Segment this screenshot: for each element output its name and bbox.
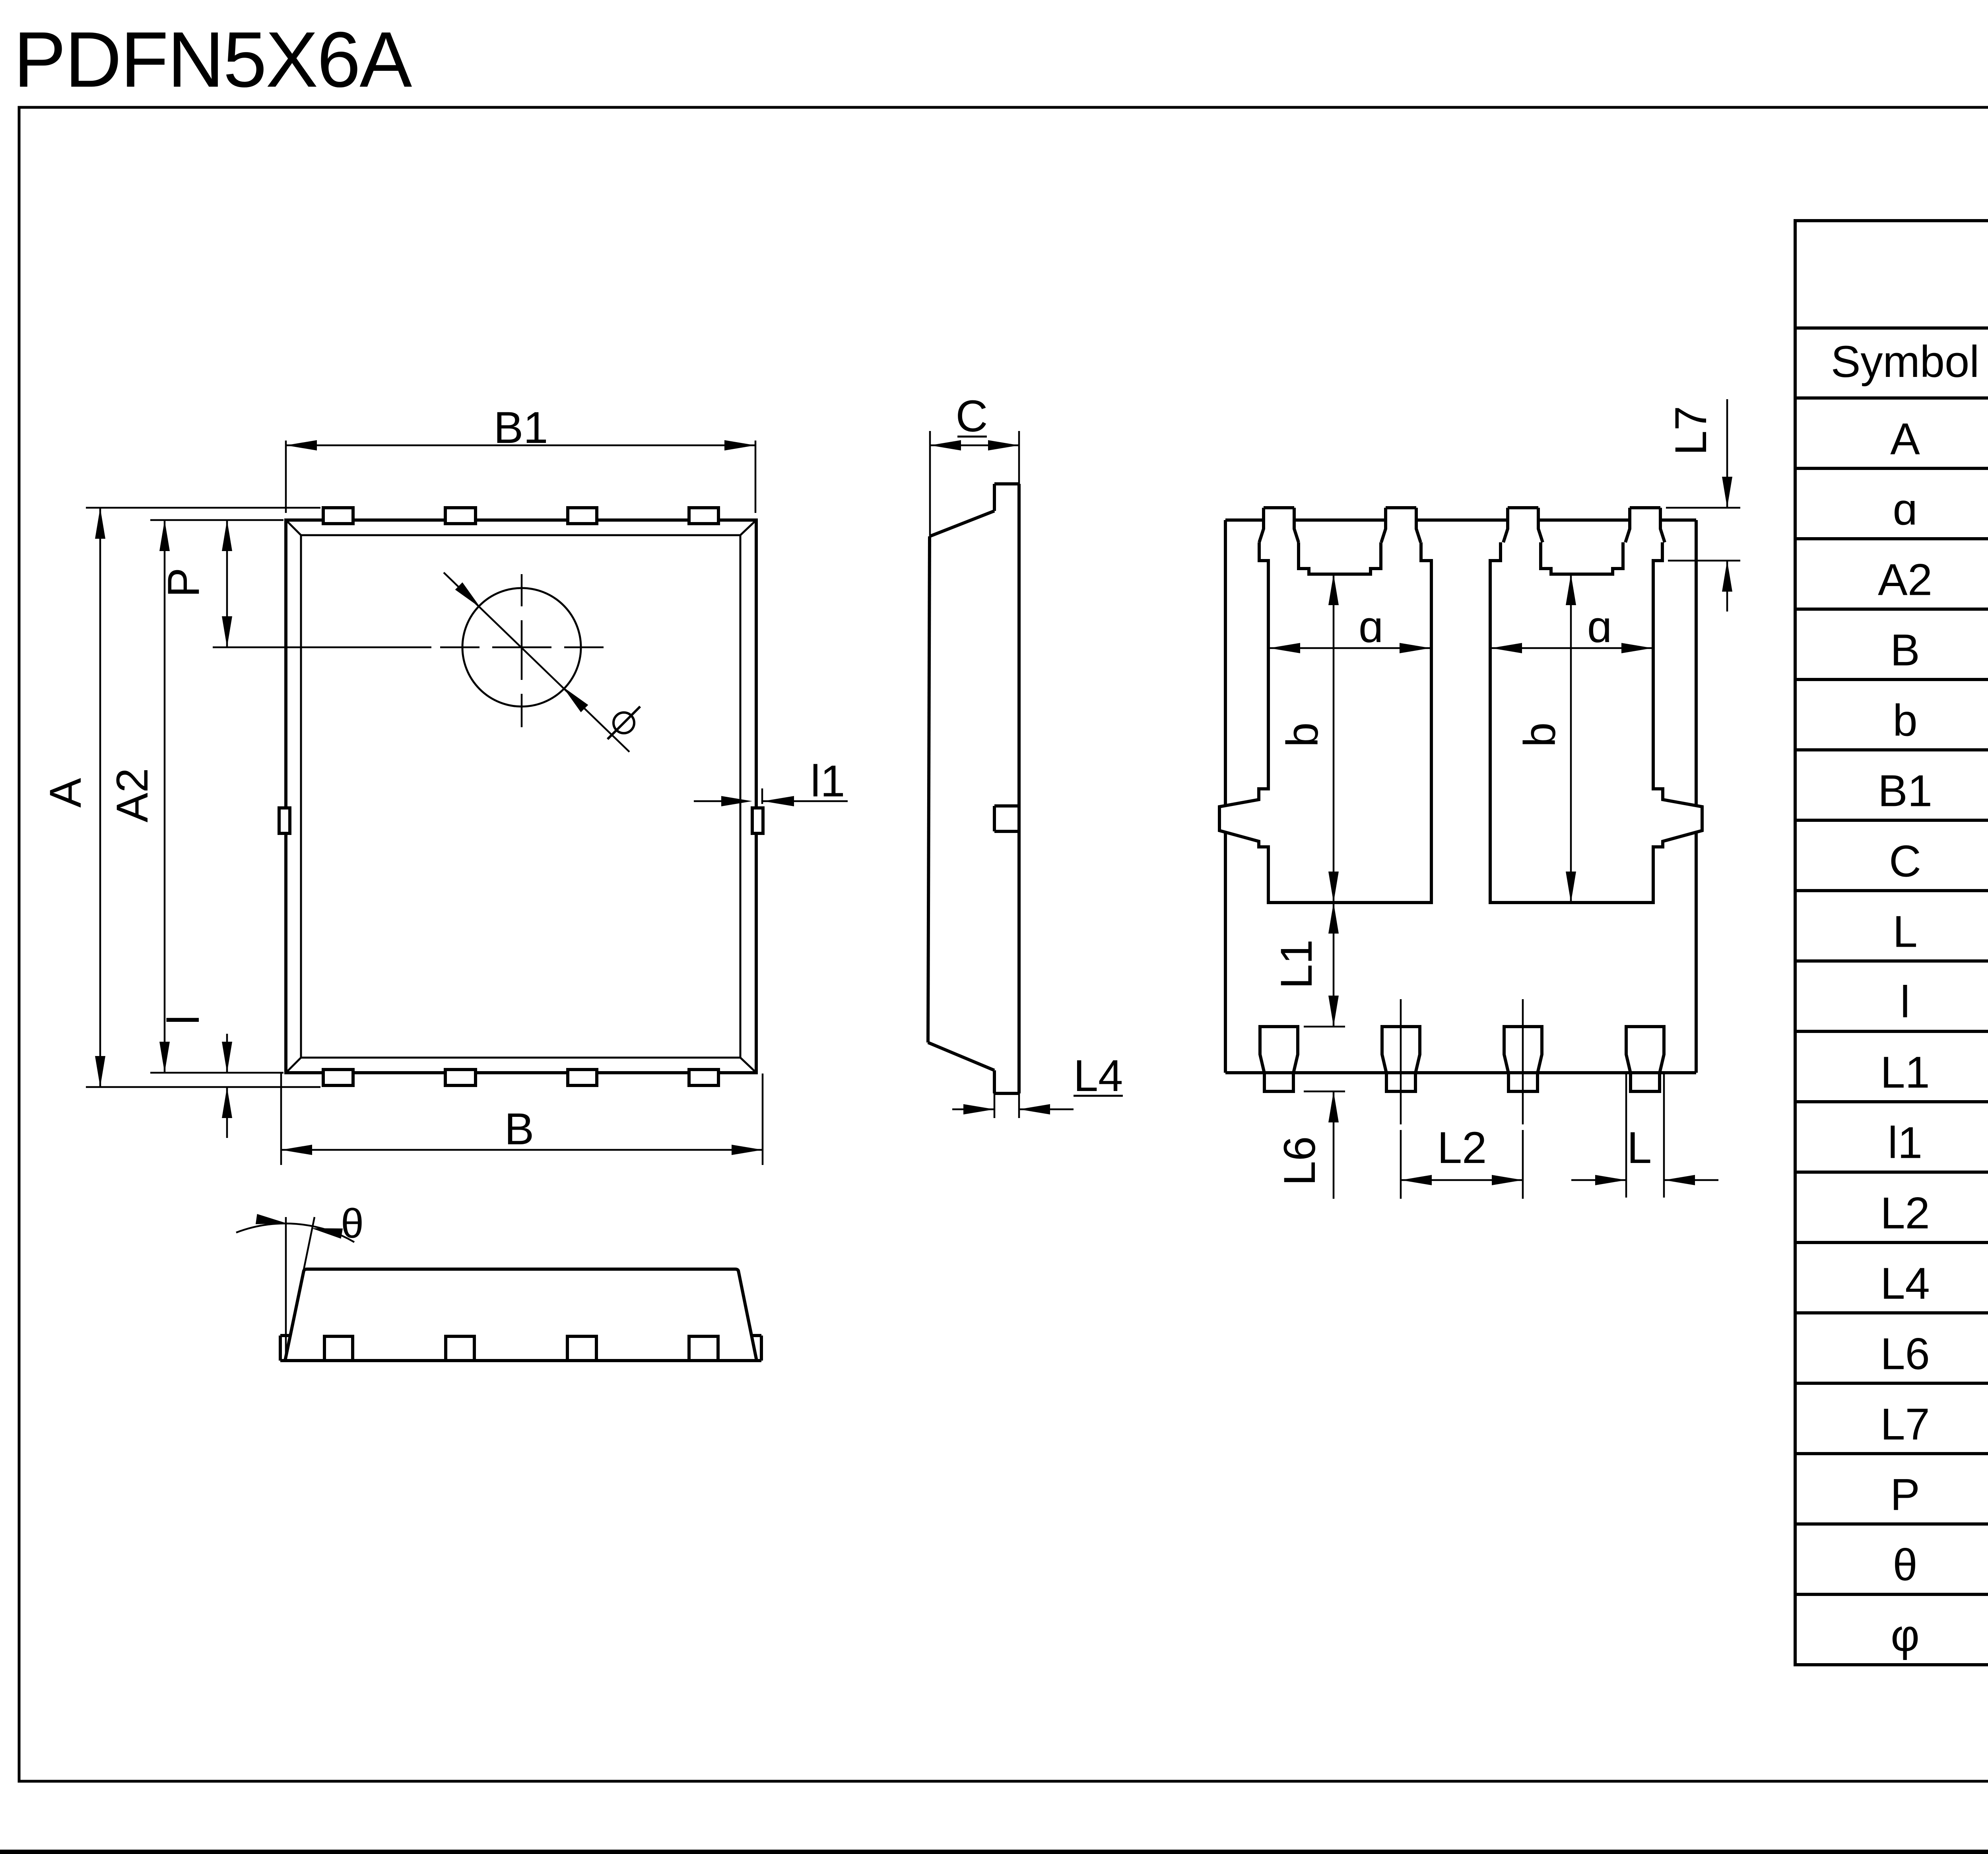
svg-text:θ: θ — [341, 1201, 364, 1247]
svg-text:l1: l1 — [810, 756, 845, 806]
svg-text:b: b — [1893, 696, 1917, 745]
svg-text:A2: A2 — [1878, 555, 1932, 605]
svg-text:θ: θ — [1893, 1540, 1917, 1590]
svg-text:B1: B1 — [494, 403, 548, 452]
svg-text:b: b — [1515, 722, 1565, 747]
svg-text:ɑ: ɑ — [1893, 485, 1917, 534]
svg-text:C: C — [1889, 837, 1921, 886]
svg-text:L4: L4 — [1880, 1259, 1930, 1308]
svg-text:ɑ: ɑ — [1587, 602, 1612, 652]
svg-text:L1: L1 — [1272, 940, 1321, 989]
svg-text:l1: l1 — [1888, 1118, 1922, 1168]
svg-text:A: A — [1890, 414, 1920, 464]
svg-text:L1: L1 — [1880, 1048, 1930, 1097]
svg-text:b: b — [1277, 722, 1327, 747]
svg-text:L4: L4 — [1074, 1051, 1123, 1101]
svg-text:l: l — [159, 1015, 208, 1025]
svg-text:L7: L7 — [1666, 406, 1716, 456]
svg-text:A: A — [41, 778, 90, 808]
svg-text:P: P — [159, 568, 208, 598]
svg-text:L: L — [1893, 907, 1917, 957]
svg-text:A2: A2 — [107, 768, 157, 823]
svg-text:L6: L6 — [1880, 1329, 1930, 1379]
svg-text:φ: φ — [1891, 1611, 1920, 1660]
svg-text:B1: B1 — [1878, 766, 1932, 816]
svg-text:L: L — [1627, 1123, 1652, 1173]
svg-text:ɑ: ɑ — [1359, 602, 1383, 652]
svg-text:P: P — [1890, 1470, 1920, 1520]
svg-text:B: B — [505, 1104, 534, 1154]
svg-text:C: C — [956, 391, 988, 441]
svg-text:L2: L2 — [1437, 1123, 1487, 1173]
svg-text:B: B — [1890, 625, 1920, 675]
svg-text:PDFN5X6A: PDFN5X6A — [14, 16, 412, 103]
svg-text:L6: L6 — [1275, 1136, 1324, 1186]
svg-text:L2: L2 — [1880, 1188, 1930, 1238]
svg-text:L7: L7 — [1880, 1400, 1930, 1449]
svg-text:Symbol: Symbol — [1831, 337, 1979, 386]
svg-text:l: l — [1900, 977, 1910, 1027]
